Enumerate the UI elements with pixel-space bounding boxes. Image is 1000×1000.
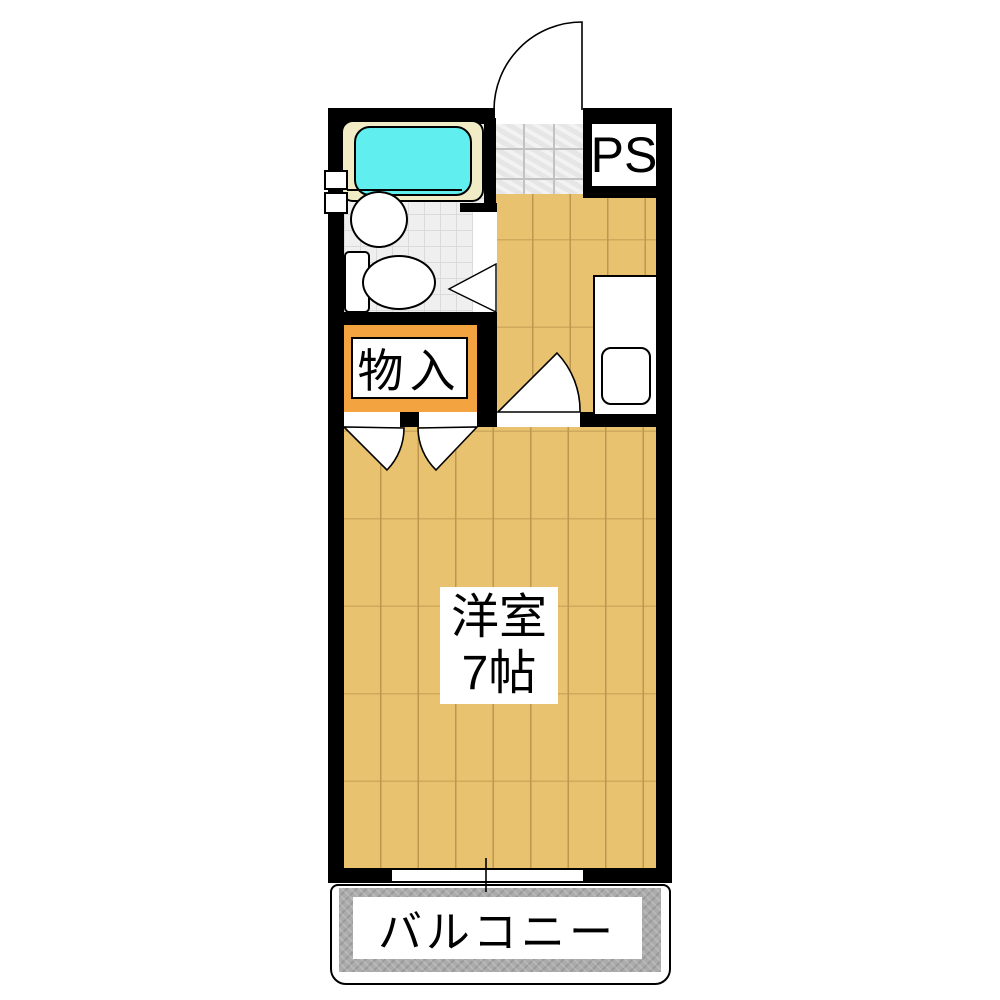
closet-label-text: 物入 bbox=[358, 335, 462, 401]
balcony-label: バルコニー bbox=[353, 897, 642, 959]
wall-bath-closet-divider bbox=[344, 312, 497, 325]
main-room-size-text: 7帖 bbox=[462, 646, 537, 702]
wall-bath-entry-divider bbox=[484, 118, 496, 212]
floor-plan: PS 物入 洋室 7帖 バルコニー bbox=[0, 0, 1000, 1000]
window bbox=[392, 868, 583, 883]
wall-left bbox=[328, 108, 344, 883]
washbasin-counter-edge bbox=[347, 189, 462, 191]
washbasin bbox=[350, 191, 408, 248]
ps-label: PS bbox=[592, 124, 656, 186]
bathtub-water bbox=[354, 126, 472, 196]
closet-label: 物入 bbox=[351, 337, 468, 399]
entry-door-arc bbox=[494, 22, 582, 110]
wall-ps-bottom bbox=[583, 186, 658, 198]
toilet-bowl bbox=[362, 255, 436, 310]
wall-right bbox=[656, 108, 672, 883]
closet-opening-right bbox=[419, 412, 477, 427]
kitchen-sink bbox=[601, 347, 651, 405]
main-room-name-text: 洋室 bbox=[451, 590, 547, 646]
ps-label-text: PS bbox=[591, 126, 658, 184]
wall-bathtub-stub bbox=[460, 203, 497, 212]
balcony-label-text: バルコニー bbox=[378, 896, 617, 960]
entry-opening bbox=[495, 108, 583, 124]
shower-fixture-lower bbox=[324, 192, 348, 214]
hall-door-opening bbox=[497, 412, 580, 427]
bath-door-opening bbox=[473, 212, 497, 312]
main-room-label: 洋室 7帖 bbox=[440, 587, 558, 704]
entry-tile-floor bbox=[493, 118, 583, 196]
closet-opening-left bbox=[344, 412, 400, 427]
shower-fixture bbox=[324, 170, 348, 190]
wall-closet-right bbox=[477, 313, 497, 412]
